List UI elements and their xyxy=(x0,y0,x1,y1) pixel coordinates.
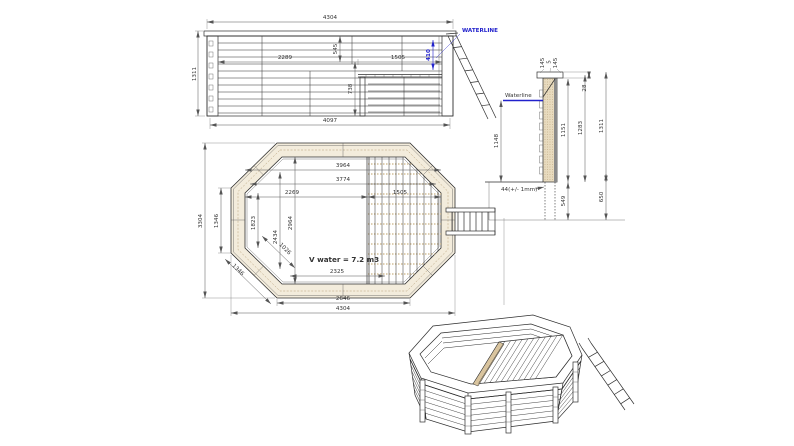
elevation-body xyxy=(204,31,496,119)
dim-cap-outer: 145 xyxy=(540,57,546,68)
dim-inner-mid: 3774 xyxy=(336,177,351,183)
technical-drawing-sheet: 4304 1311 4097 2289 1505 545 738 410 WAT… xyxy=(0,0,794,446)
dim-total-height: 1311 xyxy=(599,118,605,133)
dim-deck-width: 1505 xyxy=(393,190,408,196)
dim-embed-total: 650 xyxy=(599,191,605,202)
dim-embed-depth: 549 xyxy=(561,195,567,206)
dim-rim-drop: 545 xyxy=(333,43,339,54)
plan-view: 3964 3774 2269 1505 2964 2434 1823 1026 … xyxy=(192,133,532,325)
section-waterline-label: Waterline xyxy=(505,93,532,99)
iso-pool xyxy=(409,315,634,434)
dim-water-zone: 2289 xyxy=(278,55,293,61)
dim-overall-top: 4304 xyxy=(323,15,338,21)
dim-overall-width: 4304 xyxy=(336,306,351,312)
dim-bottom-edge: 2646 xyxy=(336,296,351,302)
dim-diag-outer: 1346 xyxy=(230,263,245,278)
dim-deck-zone: 1505 xyxy=(391,55,406,61)
dim-inner-height: 2964 xyxy=(288,215,294,230)
dim-cap-gap: 5 xyxy=(547,60,553,64)
isometric-view xyxy=(398,300,658,446)
dim-water-depth: 410 xyxy=(426,49,432,61)
dim-inner-height: 1151 xyxy=(561,122,567,137)
elevation-view: 4304 1311 4097 2289 1505 545 738 410 WAT… xyxy=(190,8,502,136)
dim-side-inner: 1823 xyxy=(251,215,257,230)
dim-mid-height: 2434 xyxy=(273,229,279,244)
dim-side-outer: 1346 xyxy=(214,213,220,228)
dim-water-width: 2269 xyxy=(285,190,300,196)
dim-under-deck: 738 xyxy=(348,83,354,94)
elevation-planks xyxy=(218,36,442,116)
elevation-deck-structure xyxy=(358,75,442,117)
elevation-dimensions: 4304 1311 4097 2289 1505 545 738 410 WAT… xyxy=(192,15,498,129)
plan-body xyxy=(231,143,504,305)
waterline-label: WATERLINE xyxy=(462,28,498,34)
dim-cap-inner: 145 xyxy=(553,57,559,68)
dim-outer-height: 3304 xyxy=(198,213,204,228)
dim-inner-top: 3964 xyxy=(336,163,351,169)
dim-height: 1311 xyxy=(192,66,198,81)
dim-overall-bottom: 4097 xyxy=(323,118,338,124)
water-volume-label: V water = 7.2 m3 xyxy=(309,255,379,264)
dim-wall-height: 1283 xyxy=(578,120,584,135)
dim-water-bottom: 2325 xyxy=(330,269,345,275)
iso-ladder xyxy=(579,338,634,410)
